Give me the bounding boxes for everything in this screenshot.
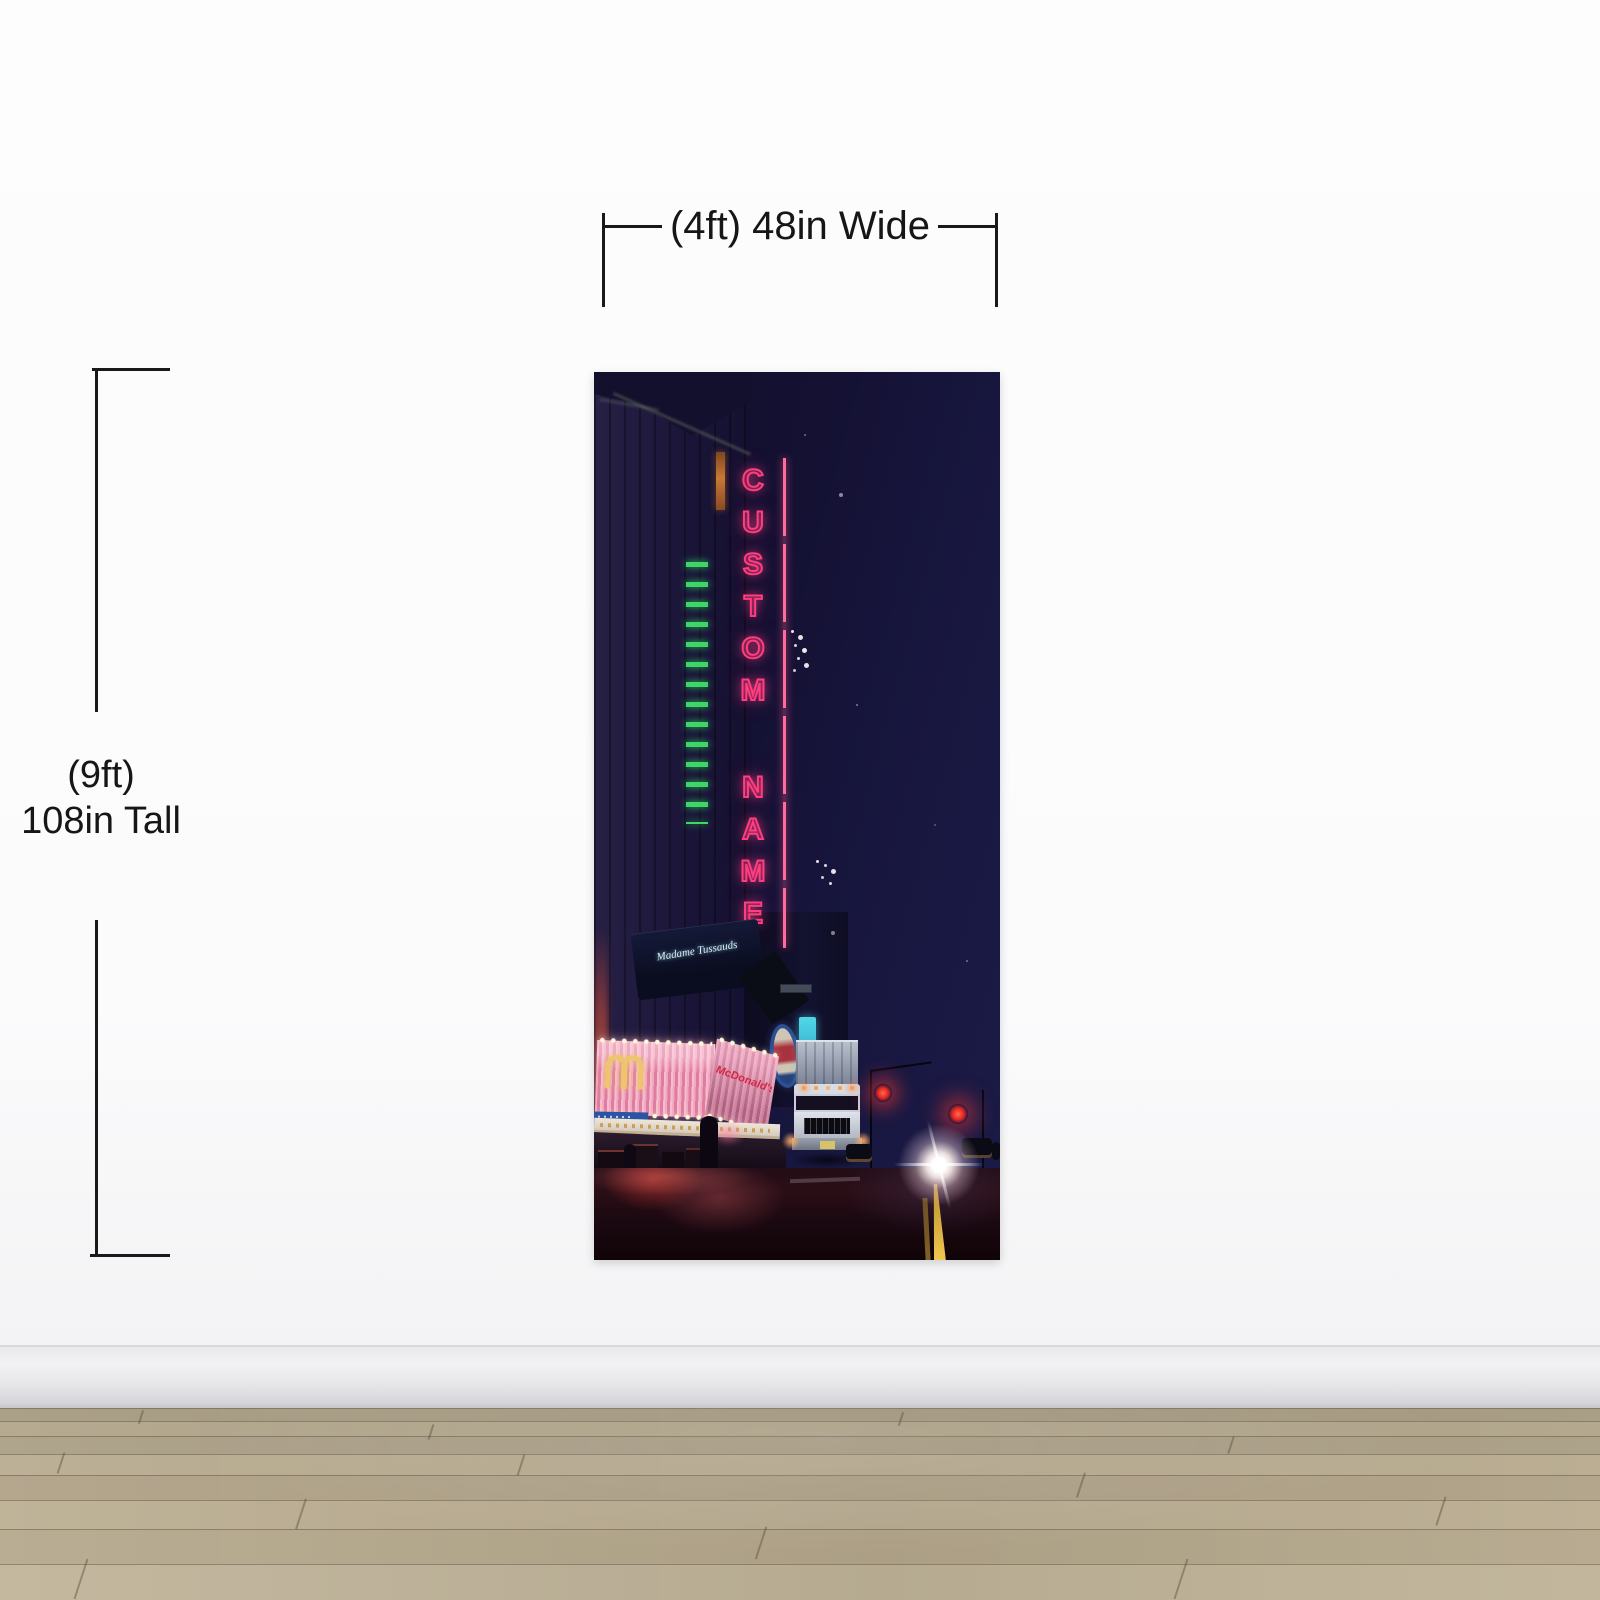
height-dim-label: (9ft) 108in Tall <box>8 752 194 844</box>
truck-headlight <box>782 1132 800 1150</box>
truck-grille <box>804 1118 850 1134</box>
truck-marker-lights <box>802 1086 806 1090</box>
marquee-front-face <box>595 1040 716 1118</box>
floor-sheen <box>0 1408 1600 1600</box>
headlight-glare <box>894 1120 984 1210</box>
neon-letter: A <box>732 809 774 851</box>
traffic-light-arm <box>870 1061 932 1072</box>
red-traffic-signal <box>874 1084 892 1102</box>
green-neon-sign <box>686 562 708 824</box>
marquee-script-text: McDonald's <box>715 1064 773 1096</box>
mural-light-cluster-b <box>816 860 819 863</box>
baseboard <box>0 1345 1600 1408</box>
height-dim-label-line1: (9ft) <box>8 752 194 798</box>
mural-lit-window <box>716 452 725 510</box>
neon-letter: M <box>732 670 774 712</box>
height-dim-upper-line <box>95 368 98 712</box>
height-dim-bottom-tick <box>90 1254 170 1257</box>
neon-letter: U <box>732 502 774 544</box>
height-dim-lower-line <box>95 920 98 1257</box>
neon-letter: M <box>732 851 774 893</box>
width-dim-label: (4ft) 48in Wide <box>660 202 940 250</box>
marquee-light-spill <box>594 1168 769 1200</box>
neon-letter: N <box>732 767 774 809</box>
truck-license-plate <box>820 1141 835 1149</box>
marquee-bulb-row <box>599 1037 712 1047</box>
wood-floor <box>0 1408 1600 1600</box>
truck-trailer <box>796 1040 858 1084</box>
width-dim-left-tick <box>602 225 662 228</box>
truck-windshield <box>794 1094 860 1112</box>
width-dim-right-end <box>995 213 998 307</box>
neon-letter: O <box>732 628 774 670</box>
marquee-side-face: McDonald's <box>705 1039 779 1133</box>
height-dim-label-line2: 108in Tall <box>8 798 194 844</box>
marquee-bulb-row <box>718 1036 778 1059</box>
height-dim-top-tick <box>92 368 170 371</box>
neon-letter: C <box>732 460 774 502</box>
car-silhouette <box>846 1144 872 1162</box>
mural-light-cluster-a <box>791 630 794 633</box>
golden-arch <box>621 1055 644 1090</box>
neon-sign-edge-tube <box>783 458 786 948</box>
room-scene: (4ft) 48in Wide (9ft) 108in Tall C U S T… <box>0 0 1600 1600</box>
awning-script-text: Madame Tussauds <box>633 935 761 967</box>
neon-letter: S <box>732 544 774 586</box>
street-name-sign <box>780 984 812 993</box>
mural-distant-lights <box>594 372 596 374</box>
custom-name-neon-sign: C U S T O M N A M E <box>732 460 774 935</box>
width-dim-right-tick <box>938 225 998 228</box>
wall-mural-panel: C U S T O M N A M E Madame Tussauds EM <box>594 372 1000 1260</box>
car-silhouette <box>992 1142 1000 1160</box>
neon-letter: T <box>732 586 774 628</box>
